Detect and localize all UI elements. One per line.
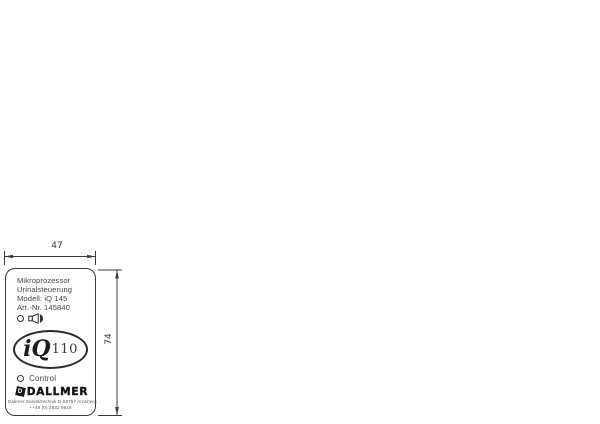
panel-line-3: Modell: iQ 145: [17, 294, 91, 303]
led-circle-icon: [17, 315, 24, 322]
iq-logo-text: iQ: [23, 338, 51, 360]
speaker-icon: [28, 313, 45, 324]
iq-logo-number: 110: [52, 343, 78, 356]
brand-diamond-icon: D: [15, 386, 26, 397]
drawing-canvas: 47 74 Mikroprozessor Urinalsteuerung Mod…: [0, 0, 600, 424]
panel-line-1: Mikroprozessor: [17, 276, 91, 285]
height-dimension-label: 74: [104, 322, 114, 356]
width-dimension-label: 47: [40, 241, 74, 251]
iq-logo-ellipse: iQ 110: [13, 330, 88, 369]
led-circle-icon: [17, 375, 24, 382]
panel-line-2: Urinalsteuerung: [17, 285, 91, 294]
brand-diamond-letter: D: [18, 389, 22, 395]
manufacturer-address: Dallmer Sanitärtechnik D-59757 Arnsberg: [8, 399, 93, 404]
control-indicator-row: Control: [17, 372, 56, 384]
brand-name: DALLMER: [27, 386, 89, 398]
control-label: Control: [29, 374, 56, 383]
faceplate-panel: Mikroprozessor Urinalsteuerung Modell: i…: [5, 268, 96, 416]
panel-text-block: Mikroprozessor Urinalsteuerung Modell: i…: [17, 276, 91, 312]
panel-line-4: Art.-Nr. 145840: [17, 303, 91, 312]
speaker-indicator-row: [17, 312, 45, 324]
brand-logo: D DALLMER: [14, 385, 90, 398]
manufacturer-phone: ++49 (0) 2932 9616: [8, 405, 93, 410]
